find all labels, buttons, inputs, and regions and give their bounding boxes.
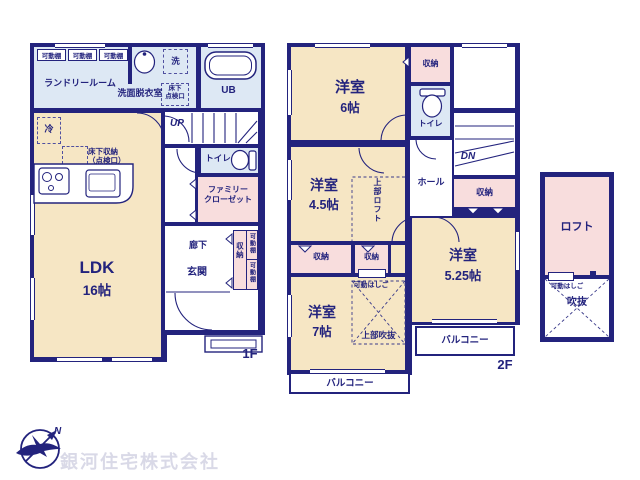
label-line: （点検口）: [88, 156, 136, 165]
label-line: 床下: [161, 85, 189, 93]
window: [112, 357, 152, 362]
room-unit-bath: [201, 47, 261, 108]
label-hallway: 廊下: [183, 240, 213, 251]
closet-strip-1f: 収納 可動棚 可動棚: [233, 230, 258, 290]
label-closet-2f-b: 収納: [355, 252, 388, 261]
room-7jo: [291, 277, 405, 370]
movable-shelf-box: 可動棚: [99, 49, 128, 61]
balcony-door: [310, 369, 385, 374]
stairwell-upper-2f: [454, 47, 515, 108]
room-gap: [391, 245, 405, 273]
balcony-door: [432, 319, 497, 324]
label-ladder-loft: 可動はしご: [545, 283, 589, 291]
corridor-1f: [165, 148, 195, 222]
company-name: 銀河住宅株式会社: [60, 448, 220, 474]
label-loft: ロフト: [551, 221, 603, 235]
compass-north-label: N: [54, 426, 62, 437]
window: [208, 43, 253, 48]
label-room7: 洋室: [294, 304, 350, 322]
label-floor1: 1F: [236, 346, 264, 362]
window: [462, 43, 507, 48]
label-room525-size: 5.25帖: [429, 269, 497, 285]
label-room45-size: 4.5帖: [294, 198, 354, 214]
label-ldk-size: 16帖: [62, 283, 132, 300]
label-loft-void: 吹抜: [557, 297, 597, 310]
label-line: 点検口: [161, 93, 189, 101]
label-ladder-2f: 可動はしご: [345, 282, 397, 291]
label-line: ファミリー: [200, 185, 256, 195]
window: [315, 43, 370, 48]
label-closet-2f-a: 収納: [291, 252, 351, 262]
label-room6-size: 6帖: [318, 101, 382, 117]
label-unit-bath: UB: [211, 85, 246, 98]
label-closet-2f-top: 収納: [411, 59, 450, 69]
label-floor2: 2F: [492, 357, 518, 373]
label-ldk: LDK: [62, 257, 132, 278]
label-void-above: 上部吹抜: [352, 330, 405, 341]
floorplan-page: 収納 可動棚 可動棚 可動棚 可動棚 可動棚: [0, 0, 640, 480]
movable-ladder-2f: [358, 269, 386, 278]
window: [287, 70, 292, 115]
label-washer: 洗: [163, 56, 188, 67]
label-room7-size: 7帖: [294, 325, 350, 341]
movable-shelf-box: 可動棚: [37, 49, 66, 61]
floor-storage-box: [62, 146, 88, 169]
closet-1f-label: 収納: [235, 242, 244, 259]
label-room525: 洋室: [433, 247, 493, 265]
label-room45: 洋室: [296, 177, 352, 195]
label-toilet-2f: トイレ: [413, 119, 448, 129]
movable-ladder-loft: [548, 272, 574, 281]
movable-shelf-box: 可動棚: [68, 49, 97, 61]
shelf-divider: [247, 259, 259, 260]
label-family-closet: ファミリー クローゼット: [200, 185, 256, 205]
label-loft-above: 上部ロフト: [372, 178, 382, 223]
label-hall: ホール: [410, 177, 452, 188]
north-arrow-icon: [47, 430, 57, 440]
label-toilet-1f: トイレ: [203, 153, 233, 164]
label-stairs-down: DN: [456, 151, 480, 164]
window: [57, 357, 102, 362]
label-line: クローゼット: [200, 195, 256, 205]
label-stairs-up: UP: [166, 118, 188, 131]
label-balcony-bottom: バルコニー: [305, 378, 395, 390]
label-line: 床下収納: [88, 147, 136, 156]
window: [55, 43, 105, 48]
laundry-partition-wall: [128, 47, 132, 84]
window: [515, 232, 520, 270]
label-underfloor-hatch: 床下 点検口: [161, 85, 189, 101]
label-room6: 洋室: [318, 79, 382, 98]
stairs-down-area: [454, 113, 515, 175]
label-fridge: 冷: [37, 124, 61, 135]
window: [287, 160, 292, 200]
label-floor-storage: 床下収納 （点検口）: [88, 147, 136, 166]
label-balcony-right: バルコニー: [425, 335, 505, 347]
loft-wall-stub: [590, 271, 596, 277]
label-entrance: 玄関: [181, 267, 213, 280]
window: [287, 295, 292, 337]
movable-shelf-label: 可動棚: [247, 262, 255, 283]
bird-icon: [16, 435, 61, 457]
window: [30, 278, 35, 320]
label-closet-2f-stairs: 収納: [454, 187, 515, 198]
movable-shelf-label: 可動棚: [247, 233, 255, 254]
window: [30, 195, 35, 235]
